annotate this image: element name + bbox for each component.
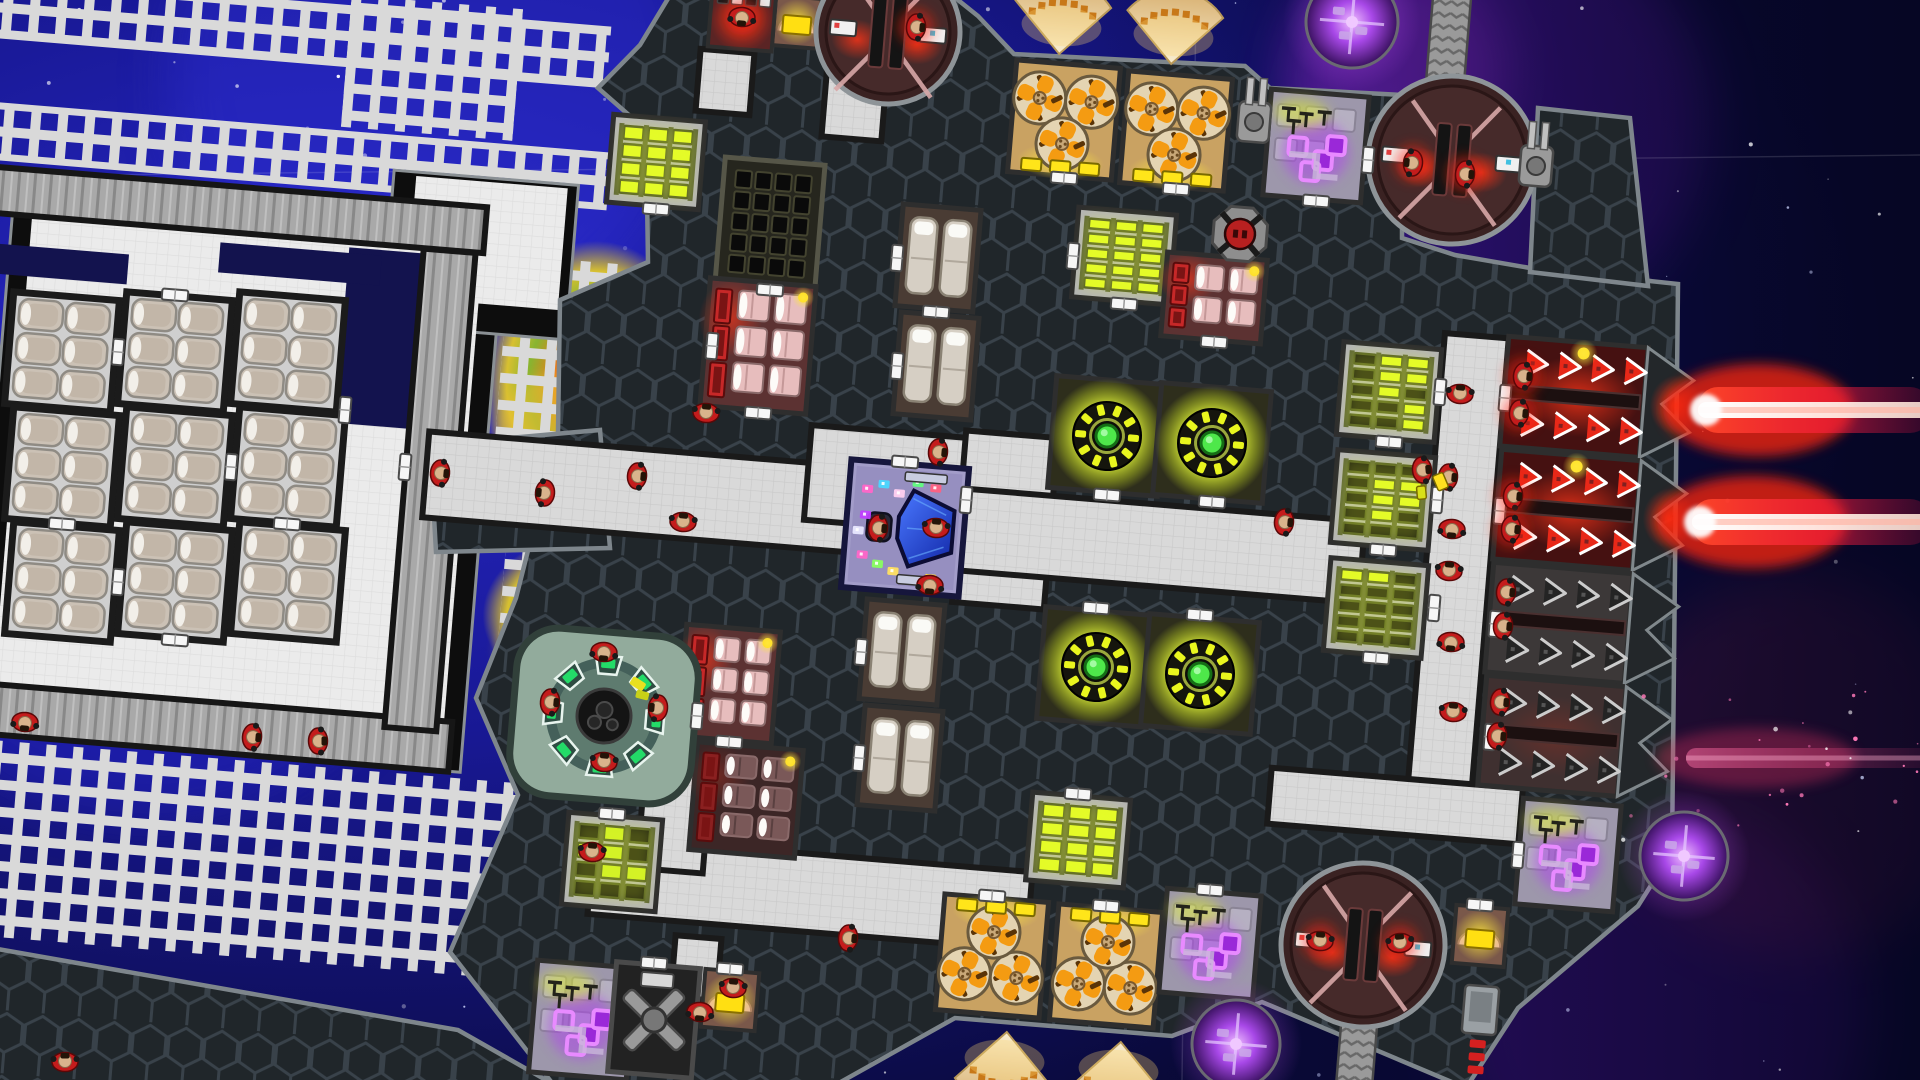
door[interactable] xyxy=(1051,171,1078,184)
door[interactable] xyxy=(1163,182,1190,195)
cargo-storage-room[interactable] xyxy=(118,292,233,412)
cargo-storage-room[interactable] xyxy=(231,407,346,527)
reactor-spoke xyxy=(1064,661,1076,669)
sparkle xyxy=(1674,757,1678,761)
reactor-spoke xyxy=(1117,665,1129,673)
door[interactable] xyxy=(1199,495,1226,508)
sparkle xyxy=(1848,710,1852,714)
room-fans[interactable] xyxy=(1047,900,1165,1029)
door[interactable] xyxy=(690,703,703,730)
lattice-scaffold xyxy=(341,0,523,141)
star xyxy=(1827,178,1829,180)
door[interactable] xyxy=(111,569,124,596)
reactor-spoke xyxy=(1233,441,1245,449)
room-shield[interactable] xyxy=(1515,798,1621,912)
reactor-spoke xyxy=(1221,672,1233,680)
sparkle xyxy=(1621,838,1625,842)
door[interactable] xyxy=(1197,883,1224,896)
door[interactable] xyxy=(1361,147,1374,174)
star xyxy=(463,1006,465,1008)
door[interactable] xyxy=(398,454,411,481)
door[interactable] xyxy=(599,807,626,820)
sparkle xyxy=(1642,694,1646,698)
sparkle xyxy=(1853,737,1858,742)
sparkle xyxy=(1903,765,1905,767)
room-bedroom[interactable] xyxy=(895,204,981,312)
sparkle xyxy=(1696,809,1699,812)
star xyxy=(235,84,239,88)
door[interactable] xyxy=(1467,898,1494,911)
star xyxy=(47,81,51,85)
sparkle xyxy=(1773,727,1778,732)
room-battery[interactable] xyxy=(1336,342,1441,443)
star xyxy=(402,1004,406,1008)
room-shield[interactable] xyxy=(1263,89,1369,203)
star xyxy=(1779,1068,1781,1070)
sparkle xyxy=(1758,739,1760,741)
cargo-storage-room[interactable] xyxy=(118,407,233,527)
star xyxy=(603,98,606,101)
door[interactable] xyxy=(49,517,76,530)
door[interactable] xyxy=(979,889,1006,902)
room-bedroom[interactable] xyxy=(893,312,979,420)
sparkle xyxy=(1769,794,1771,796)
star xyxy=(173,61,175,63)
room-battery[interactable] xyxy=(1026,792,1131,888)
door[interactable] xyxy=(641,956,668,969)
cargo-storage-room[interactable] xyxy=(231,292,346,412)
star xyxy=(337,75,340,78)
door[interactable] xyxy=(705,333,718,360)
door[interactable] xyxy=(852,745,865,772)
star xyxy=(1809,270,1812,273)
sparkle xyxy=(1800,793,1804,797)
sparkle xyxy=(1808,745,1811,748)
door[interactable] xyxy=(1187,608,1214,621)
star xyxy=(1235,2,1237,4)
door[interactable] xyxy=(1511,842,1524,869)
star xyxy=(1763,1060,1764,1061)
ship-map-viewport xyxy=(0,0,1920,1080)
door[interactable] xyxy=(892,455,919,468)
door[interactable] xyxy=(1201,335,1228,348)
door[interactable] xyxy=(745,406,772,419)
room-reactor[interactable] xyxy=(1034,605,1157,728)
reactor-spoke xyxy=(1168,668,1180,676)
room-reactor[interactable] xyxy=(1138,612,1261,735)
door[interactable] xyxy=(274,517,301,530)
sparkle xyxy=(1629,814,1633,818)
door[interactable] xyxy=(1303,194,1330,207)
sparkle xyxy=(1786,803,1789,806)
door[interactable] xyxy=(854,639,867,666)
room-fans[interactable] xyxy=(1005,60,1123,185)
cargo-storage-room[interactable] xyxy=(5,522,120,642)
sparkle xyxy=(1849,757,1851,759)
door[interactable] xyxy=(162,633,189,646)
room-fans[interactable] xyxy=(1117,71,1235,196)
sparkle xyxy=(1664,775,1667,778)
door[interactable] xyxy=(111,339,124,366)
sparkle xyxy=(1864,691,1866,693)
door[interactable] xyxy=(1370,543,1397,556)
sparkle xyxy=(1780,789,1784,793)
room-battery[interactable] xyxy=(607,114,706,209)
star xyxy=(1317,1073,1321,1077)
star xyxy=(1860,776,1863,779)
star xyxy=(1665,984,1667,986)
crew-member[interactable] xyxy=(309,727,328,756)
door[interactable] xyxy=(890,353,903,380)
room-fans[interactable] xyxy=(933,890,1051,1019)
star xyxy=(1855,683,1857,685)
room-battery[interactable] xyxy=(1323,558,1428,659)
reactor-spoke xyxy=(1128,434,1140,442)
door[interactable] xyxy=(1363,651,1390,664)
door[interactable] xyxy=(643,202,670,215)
door[interactable] xyxy=(338,397,351,424)
door[interactable] xyxy=(1111,297,1138,310)
door[interactable] xyxy=(1093,899,1120,912)
game-screen xyxy=(0,0,1920,1080)
door[interactable] xyxy=(162,288,189,301)
sparkle xyxy=(1825,747,1828,750)
sparkle xyxy=(1852,694,1855,697)
room-battery[interactable] xyxy=(1071,207,1176,305)
sparkle xyxy=(1893,800,1897,804)
door[interactable] xyxy=(716,735,743,748)
crew-member[interactable] xyxy=(51,1053,80,1072)
cargo-storage-room[interactable] xyxy=(5,407,120,527)
door[interactable] xyxy=(890,245,903,272)
star xyxy=(1677,190,1679,192)
door[interactable] xyxy=(1066,243,1079,270)
room-dispenser[interactable] xyxy=(1452,905,1509,967)
sparkle xyxy=(1857,830,1859,832)
sparkle xyxy=(1916,770,1919,773)
room-bedroom[interactable] xyxy=(857,705,943,811)
door[interactable] xyxy=(1083,601,1110,614)
star xyxy=(1912,377,1914,379)
door[interactable] xyxy=(1065,787,1092,800)
door[interactable] xyxy=(959,487,972,514)
room-reactor[interactable] xyxy=(1045,374,1168,497)
star xyxy=(1834,560,1838,564)
sparkle xyxy=(1802,722,1804,724)
sparkle xyxy=(1737,824,1739,826)
door[interactable] xyxy=(757,283,784,296)
room-battery[interactable] xyxy=(561,812,662,911)
star xyxy=(1787,206,1790,209)
room-reactor[interactable] xyxy=(1150,381,1273,504)
star xyxy=(1878,213,1881,216)
star xyxy=(986,7,990,11)
cargo-storage-room[interactable] xyxy=(5,292,120,412)
cargo-storage-room[interactable] xyxy=(118,522,233,642)
star xyxy=(884,1071,886,1073)
reactor-spoke xyxy=(1075,430,1087,438)
sparkle xyxy=(1826,762,1830,766)
door[interactable] xyxy=(717,962,744,975)
star xyxy=(1580,6,1584,10)
room-quarters[interactable] xyxy=(680,741,803,858)
door[interactable] xyxy=(1427,595,1440,622)
door[interactable] xyxy=(923,305,950,318)
door[interactable] xyxy=(1094,488,1121,501)
door[interactable] xyxy=(1376,435,1403,448)
sparkle xyxy=(1729,698,1732,701)
corridor-floor[interactable] xyxy=(696,49,755,115)
sparkle xyxy=(1917,743,1919,745)
reactor-spoke xyxy=(1180,437,1192,445)
cargo-storage-room[interactable] xyxy=(231,522,346,642)
room-bedroom[interactable] xyxy=(859,599,945,705)
star xyxy=(1666,276,1667,277)
room-armory[interactable] xyxy=(715,157,825,291)
star xyxy=(1749,142,1753,146)
room-quarters[interactable] xyxy=(1153,251,1268,344)
door[interactable] xyxy=(1433,379,1446,406)
star xyxy=(1566,1008,1570,1012)
door[interactable] xyxy=(224,454,237,481)
